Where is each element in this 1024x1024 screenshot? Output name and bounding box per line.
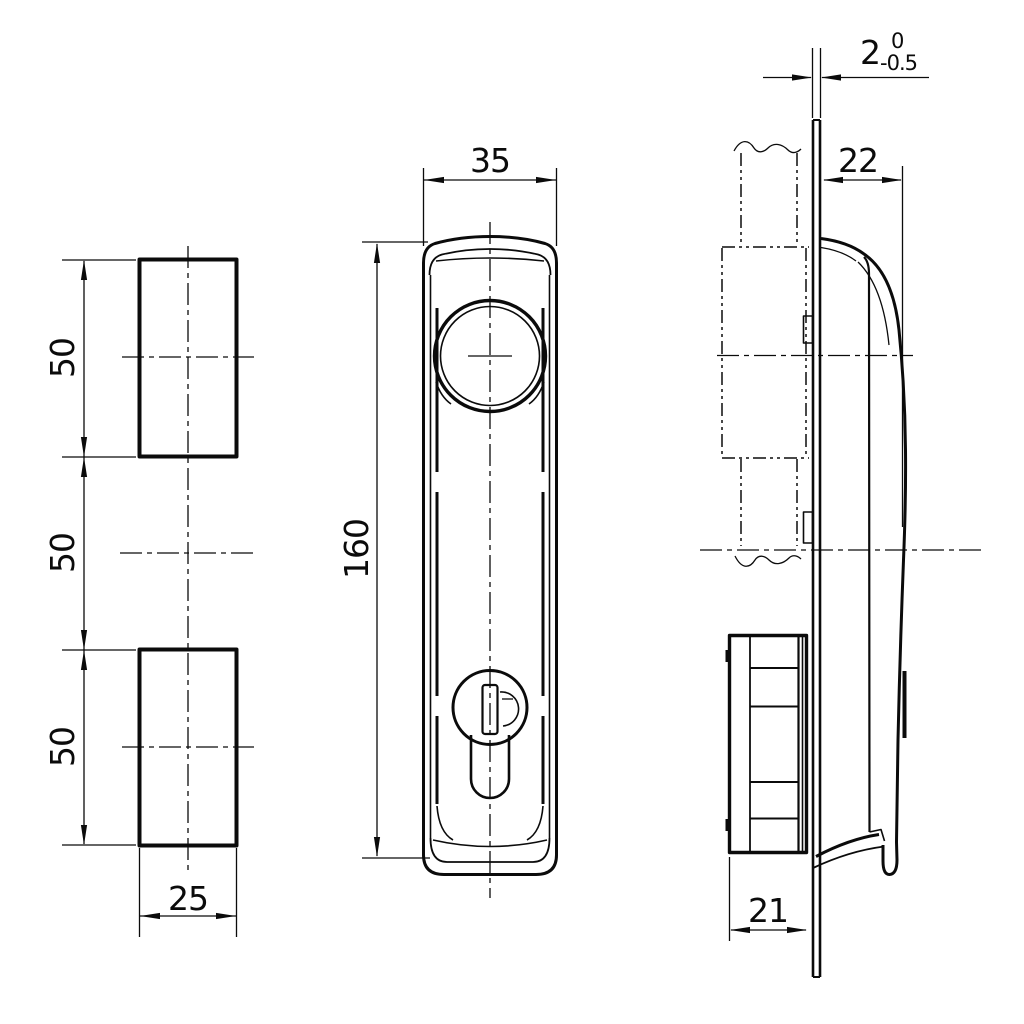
handle-outer-silhouette bbox=[821, 239, 906, 843]
dim-label-2: 2 bbox=[860, 33, 880, 72]
grip-underside-outer-arc bbox=[816, 835, 879, 857]
arrowhead bbox=[140, 913, 160, 919]
dim-label-tol-lower: -0.5 bbox=[880, 51, 917, 75]
lock-case-side bbox=[726, 636, 807, 853]
dim-label-25: 25 bbox=[168, 879, 208, 918]
dim-label-50-bottom: 50 bbox=[43, 727, 82, 767]
technical-drawing: 50 50 50 25 bbox=[0, 0, 1024, 1024]
arrowhead bbox=[81, 437, 87, 457]
dim-22: 22 bbox=[823, 141, 903, 527]
dim-21: 21 bbox=[730, 857, 808, 941]
case-nub-top bbox=[726, 650, 730, 662]
front-view: 35 160 bbox=[337, 141, 557, 898]
handle-attach-inner-curve bbox=[821, 248, 856, 262]
left-view: 50 50 50 25 bbox=[43, 246, 255, 937]
arrowhead bbox=[787, 927, 807, 933]
grip-foot bbox=[883, 842, 897, 875]
case-nub-bottom bbox=[726, 819, 730, 831]
lock-case-phantom-outline bbox=[722, 142, 813, 567]
side-view: 2 0 -0.5 22 21 bbox=[700, 29, 986, 977]
handle-profile bbox=[813, 239, 906, 875]
arrowhead bbox=[882, 177, 902, 183]
door-panel bbox=[813, 120, 820, 977]
dim-160: 160 bbox=[337, 242, 430, 858]
arrowhead bbox=[81, 630, 87, 650]
dim-label-50-middle: 50 bbox=[43, 533, 82, 573]
mount-tab-upper bbox=[804, 316, 813, 343]
dim-label-21: 21 bbox=[748, 891, 788, 930]
break-line-bottom bbox=[735, 556, 801, 567]
dim-label-160: 160 bbox=[337, 519, 376, 579]
bottom-left-corner-hook bbox=[437, 806, 453, 840]
mount-tab-lower bbox=[804, 512, 813, 543]
dim-label-50-top: 50 bbox=[43, 338, 82, 378]
handle-inner-edge bbox=[864, 257, 870, 832]
arrowhead bbox=[81, 260, 87, 280]
arrowhead bbox=[424, 177, 444, 183]
arrowhead bbox=[81, 457, 87, 477]
arrowhead bbox=[374, 837, 380, 857]
grip-underside-inner-arc bbox=[813, 847, 884, 869]
dim-label-tol-upper: 0 bbox=[891, 29, 903, 53]
arrowhead bbox=[821, 74, 841, 80]
arrowhead bbox=[792, 74, 812, 80]
cylinder-rotation-arc bbox=[500, 692, 519, 726]
dim-label-22: 22 bbox=[838, 141, 878, 180]
arrowhead bbox=[216, 913, 236, 919]
dim-label-35: 35 bbox=[470, 141, 510, 180]
dim-panel-thickness: 2 0 -0.5 bbox=[763, 29, 929, 118]
drawing-canvas: 50 50 50 25 bbox=[0, 0, 1024, 1024]
bottom-right-corner-hook bbox=[527, 806, 543, 840]
arrowhead bbox=[536, 177, 556, 183]
arrowhead bbox=[81, 825, 87, 845]
arrowhead bbox=[374, 243, 380, 263]
dim-25: 25 bbox=[140, 848, 237, 937]
arrowhead bbox=[730, 927, 750, 933]
break-line-top bbox=[734, 142, 801, 153]
arrowhead bbox=[81, 650, 87, 670]
